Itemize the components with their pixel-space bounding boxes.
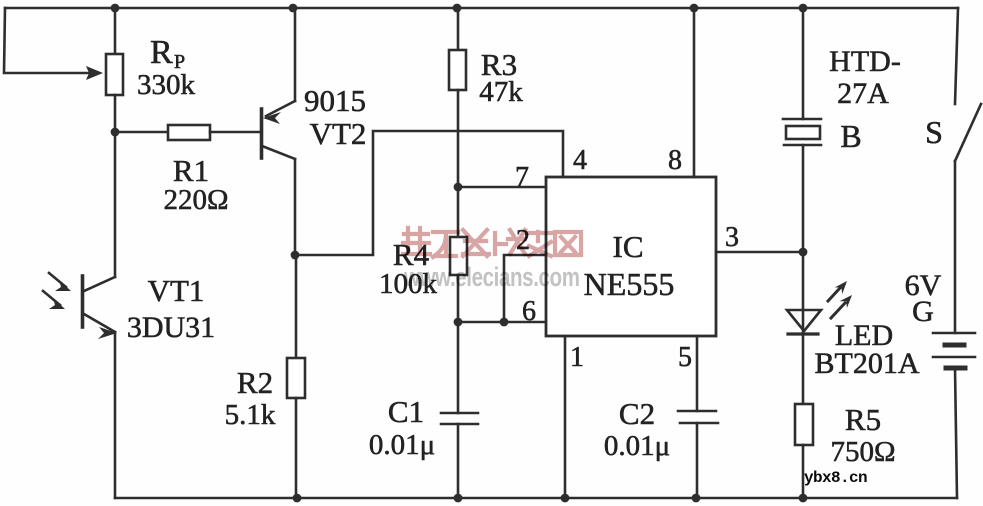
svg-text:330k: 330k: [137, 69, 196, 101]
svg-text:5.1k: 5.1k: [225, 399, 276, 431]
svg-text:R1: R1: [173, 153, 209, 188]
svg-text:R5: R5: [845, 402, 881, 437]
svg-text:ybx8.cn: ybx8.cn: [804, 469, 867, 487]
svg-text:C2: C2: [619, 396, 655, 431]
svg-text:B: B: [840, 118, 861, 154]
svg-text:750Ω: 750Ω: [830, 436, 895, 468]
svg-text:BT201A: BT201A: [815, 347, 920, 380]
svg-text:HTD-: HTD-: [829, 45, 901, 78]
svg-text:4: 4: [573, 145, 587, 176]
svg-text:3: 3: [725, 222, 739, 253]
svg-text:www.elecians.com: www.elecians.com: [403, 262, 579, 292]
svg-text:1: 1: [570, 342, 584, 373]
svg-text:220Ω: 220Ω: [163, 184, 228, 216]
svg-text:0.01μ: 0.01μ: [369, 429, 435, 461]
svg-text:S: S: [925, 114, 943, 150]
svg-text:IC: IC: [613, 229, 644, 264]
svg-text:G: G: [912, 295, 934, 328]
svg-text:8: 8: [668, 145, 682, 176]
svg-text:0.01μ: 0.01μ: [604, 430, 670, 462]
svg-text:VT1: VT1: [148, 273, 205, 308]
svg-text:R2: R2: [237, 365, 273, 400]
svg-text:47k: 47k: [479, 76, 523, 108]
svg-text:7: 7: [515, 162, 529, 193]
svg-text:5: 5: [678, 342, 692, 373]
svg-text:27A: 27A: [837, 77, 889, 110]
svg-text:R: R: [150, 34, 173, 71]
svg-text:6: 6: [522, 296, 536, 327]
svg-text:C1: C1: [388, 394, 424, 429]
svg-text:NE555: NE555: [584, 266, 675, 302]
svg-text:3DU31: 3DU31: [127, 311, 215, 344]
svg-text:9015: 9015: [304, 83, 366, 118]
svg-text:VT2: VT2: [310, 116, 367, 151]
